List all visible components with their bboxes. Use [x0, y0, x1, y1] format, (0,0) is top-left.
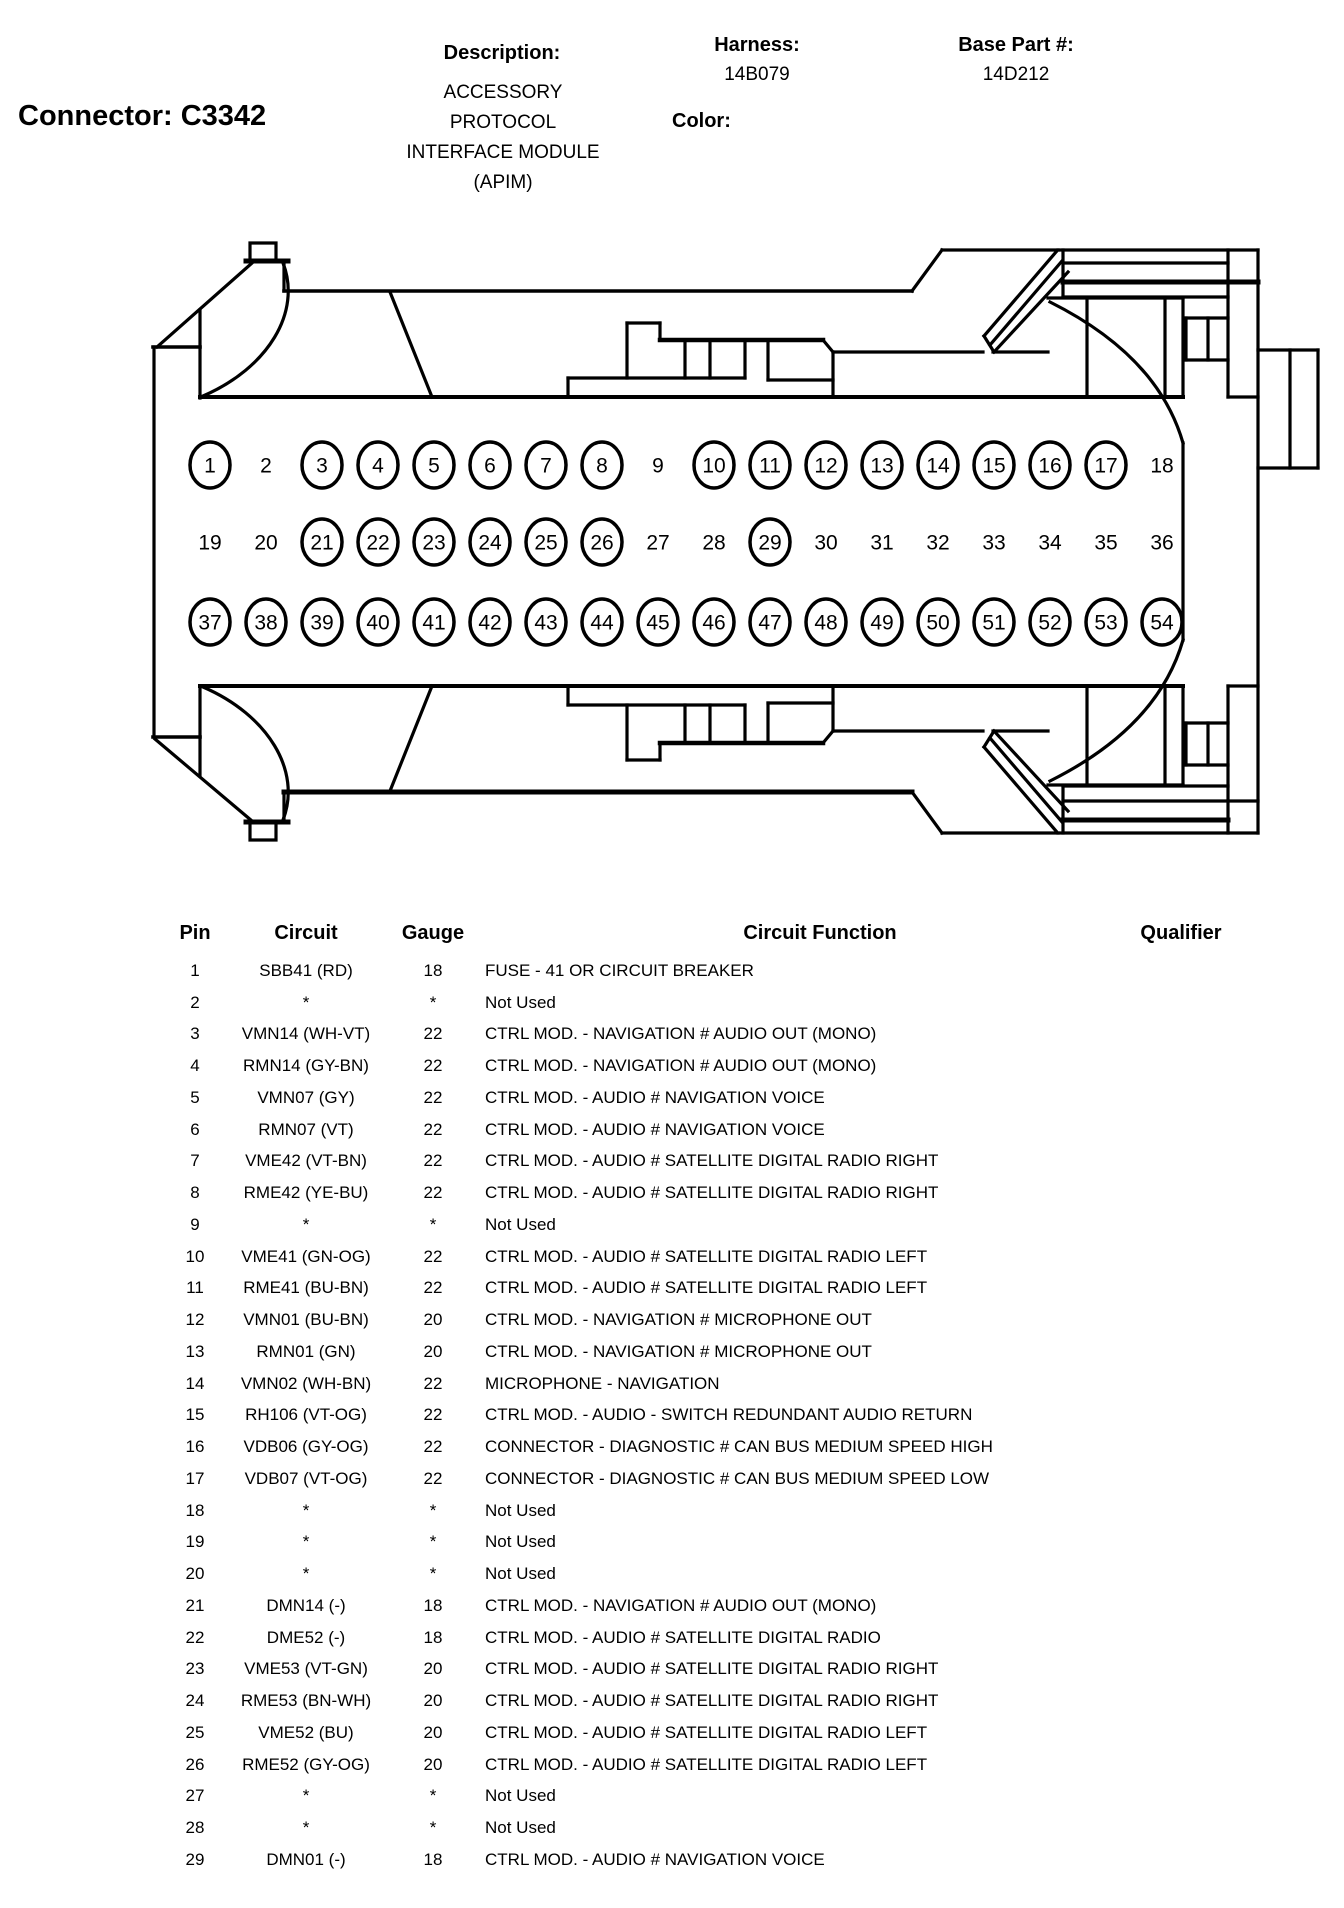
pin-number: 45	[646, 612, 669, 635]
pin-number: 31	[870, 532, 893, 555]
gauge-cell: 22	[393, 1437, 473, 1457]
gauge-cell: *	[393, 1564, 473, 1584]
circuit-cell: VME42 (VT-BN)	[196, 1151, 416, 1171]
pin-number: 8	[596, 455, 608, 478]
gauge-cell: 20	[393, 1659, 473, 1679]
table-row: 7VME42 (VT-BN)22CTRL MOD. - AUDIO # SATE…	[0, 1146, 1344, 1178]
circuit-function-cell: CTRL MOD. - AUDIO # SATELLITE DIGITAL RA…	[485, 1183, 938, 1203]
pin-number: 2	[260, 455, 272, 478]
circuit-function-cell: CTRL MOD. - AUDIO # SATELLITE DIGITAL RA…	[485, 1659, 938, 1679]
gauge-cell: 18	[393, 1628, 473, 1648]
table-row: 29DMN01 (-)18CTRL MOD. - AUDIO # NAVIGAT…	[0, 1844, 1344, 1876]
column-header-circuit: Circuit	[196, 922, 416, 945]
gauge-cell: 22	[393, 1183, 473, 1203]
circuit-function-cell: CTRL MOD. - AUDIO # SATELLITE DIGITAL RA…	[485, 1278, 927, 1298]
gauge-cell: *	[393, 1532, 473, 1552]
table-row: 22DME52 (-)18CTRL MOD. - AUDIO # SATELLI…	[0, 1622, 1344, 1654]
pin-number: 46	[702, 612, 725, 635]
pin-number: 42	[478, 612, 501, 635]
pin-number: 9	[652, 455, 664, 478]
pin-number: 15	[982, 455, 1005, 478]
pin-number: 16	[1038, 455, 1061, 478]
gauge-cell: 20	[393, 1723, 473, 1743]
gauge-cell: 22	[393, 1278, 473, 1298]
circuit-cell: VDB06 (GY-OG)	[196, 1437, 416, 1457]
pin-number: 44	[590, 612, 614, 635]
circuit-cell: VME41 (GN-OG)	[196, 1247, 416, 1267]
circuit-function-cell: CONNECTOR - DIAGNOSTIC # CAN BUS MEDIUM …	[485, 1469, 989, 1489]
gauge-cell: 22	[393, 1247, 473, 1267]
pin-number: 21	[310, 532, 333, 555]
circuit-cell: VMN02 (WH-BN)	[196, 1374, 416, 1394]
pin-number: 37	[198, 612, 221, 635]
circuit-cell: VMN07 (GY)	[196, 1088, 416, 1108]
pin-number: 18	[1150, 455, 1173, 478]
table-row: 5VMN07 (GY)22CTRL MOD. - AUDIO # NAVIGAT…	[0, 1082, 1344, 1114]
circuit-function-cell: Not Used	[485, 1532, 556, 1552]
column-header-gauge: Gauge	[393, 922, 473, 945]
table-row: 16VDB06 (GY-OG)22CONNECTOR - DIAGNOSTIC …	[0, 1431, 1344, 1463]
gauge-cell: 20	[393, 1342, 473, 1362]
table-row: 24RME53 (BN-WH)20CTRL MOD. - AUDIO # SAT…	[0, 1685, 1344, 1717]
pin-number: 7	[540, 455, 552, 478]
pin-number: 22	[366, 532, 389, 555]
connector-pinout-document: { "header": { "connector_label": "Connec…	[0, 0, 1344, 1908]
pin-number: 28	[702, 532, 725, 555]
pin-number: 48	[814, 612, 837, 635]
table-row: 27**Not Used	[0, 1781, 1344, 1813]
pin-number: 51	[982, 612, 1005, 635]
pin-number: 4	[372, 455, 384, 478]
connector-diagram: 1234567891011121314151617181920212223242…	[0, 0, 1344, 900]
gauge-cell: 22	[393, 1088, 473, 1108]
gauge-cell: 22	[393, 1056, 473, 1076]
pin-number: 54	[1150, 612, 1174, 635]
table-row: 9**Not Used	[0, 1209, 1344, 1241]
table-row: 1SBB41 (RD)18FUSE - 41 OR CIRCUIT BREAKE…	[0, 955, 1344, 987]
pin-number: 38	[254, 612, 277, 635]
circuit-function-cell: Not Used	[485, 1215, 556, 1235]
circuit-function-cell: Not Used	[485, 1818, 556, 1838]
gauge-cell: 22	[393, 1024, 473, 1044]
circuit-cell: RMN14 (GY-BN)	[196, 1056, 416, 1076]
pin-number: 30	[814, 532, 837, 555]
pin-number: 26	[590, 532, 613, 555]
circuit-function-cell: CTRL MOD. - AUDIO # SATELLITE DIGITAL RA…	[485, 1151, 938, 1171]
circuit-function-cell: CTRL MOD. - NAVIGATION # AUDIO OUT (MONO…	[485, 1024, 876, 1044]
table-row: 26RME52 (GY-OG)20CTRL MOD. - AUDIO # SAT…	[0, 1749, 1344, 1781]
pin-number: 29	[758, 532, 781, 555]
table-row: 12VMN01 (BU-BN)20CTRL MOD. - NAVIGATION …	[0, 1304, 1344, 1336]
gauge-cell: 20	[393, 1691, 473, 1711]
pin-number: 3	[316, 455, 328, 478]
pin-number: 50	[926, 612, 949, 635]
circuit-function-cell: Not Used	[485, 993, 556, 1013]
pin-number: 12	[814, 455, 837, 478]
table-row: 10VME41 (GN-OG)22CTRL MOD. - AUDIO # SAT…	[0, 1241, 1344, 1273]
gauge-cell: 18	[393, 1596, 473, 1616]
pin-number: 10	[702, 455, 725, 478]
circuit-function-cell: CTRL MOD. - AUDIO # SATELLITE DIGITAL RA…	[485, 1628, 881, 1648]
pin-number: 20	[254, 532, 277, 555]
gauge-cell: *	[393, 1786, 473, 1806]
circuit-function-cell: CTRL MOD. - NAVIGATION # MICROPHONE OUT	[485, 1342, 872, 1362]
table-row: 13RMN01 (GN)20CTRL MOD. - NAVIGATION # M…	[0, 1336, 1344, 1368]
gauge-cell: 18	[393, 1850, 473, 1870]
circuit-cell: *	[196, 1501, 416, 1521]
circuit-cell: *	[196, 1818, 416, 1838]
circuit-function-cell: CTRL MOD. - AUDIO - SWITCH REDUNDANT AUD…	[485, 1405, 972, 1425]
pin-number: 32	[926, 532, 949, 555]
table-row: 20**Not Used	[0, 1558, 1344, 1590]
circuit-function-cell: CTRL MOD. - AUDIO # NAVIGATION VOICE	[485, 1088, 825, 1108]
circuit-cell: *	[196, 993, 416, 1013]
circuit-function-cell: CTRL MOD. - NAVIGATION # MICROPHONE OUT	[485, 1310, 872, 1330]
pin-number: 41	[422, 612, 445, 635]
table-row: 23VME53 (VT-GN)20CTRL MOD. - AUDIO # SAT…	[0, 1654, 1344, 1686]
gauge-cell: *	[393, 993, 473, 1013]
circuit-cell: *	[196, 1786, 416, 1806]
table-row: 11RME41 (BU-BN)22CTRL MOD. - AUDIO # SAT…	[0, 1273, 1344, 1305]
gauge-cell: 22	[393, 1405, 473, 1425]
pin-number: 27	[646, 532, 669, 555]
circuit-cell: RME42 (YE-BU)	[196, 1183, 416, 1203]
pin-number: 33	[982, 532, 1005, 555]
gauge-cell: *	[393, 1215, 473, 1235]
pin-number: 11	[759, 455, 781, 478]
pin-number: 35	[1094, 532, 1117, 555]
circuit-cell: RMN01 (GN)	[196, 1342, 416, 1362]
circuit-function-cell: FUSE - 41 OR CIRCUIT BREAKER	[485, 961, 754, 981]
pinout-table-rows: 1SBB41 (RD)18FUSE - 41 OR CIRCUIT BREAKE…	[0, 955, 1344, 1876]
circuit-function-cell: Not Used	[485, 1501, 556, 1521]
table-row: 19**Not Used	[0, 1527, 1344, 1559]
gauge-cell: 18	[393, 961, 473, 981]
circuit-function-cell: CTRL MOD. - NAVIGATION # AUDIO OUT (MONO…	[485, 1596, 876, 1616]
pin-number: 6	[484, 455, 496, 478]
circuit-cell: DME52 (-)	[196, 1628, 416, 1648]
pin-number: 5	[428, 455, 440, 478]
pin-number: 43	[534, 612, 557, 635]
table-row: 8RME42 (YE-BU)22CTRL MOD. - AUDIO # SATE…	[0, 1177, 1344, 1209]
pin-number: 49	[870, 612, 893, 635]
table-row: 18**Not Used	[0, 1495, 1344, 1527]
gauge-cell: 22	[393, 1120, 473, 1140]
pin-number: 40	[366, 612, 389, 635]
circuit-cell: VME52 (BU)	[196, 1723, 416, 1743]
table-row: 2**Not Used	[0, 987, 1344, 1019]
pin-number: 17	[1094, 455, 1117, 478]
gauge-cell: 22	[393, 1151, 473, 1171]
circuit-function-cell: CONNECTOR - DIAGNOSTIC # CAN BUS MEDIUM …	[485, 1437, 993, 1457]
circuit-cell: RMN07 (VT)	[196, 1120, 416, 1140]
gauge-cell: 20	[393, 1755, 473, 1775]
pin-number: 13	[870, 455, 893, 478]
circuit-cell: *	[196, 1215, 416, 1235]
circuit-cell: VDB07 (VT-OG)	[196, 1469, 416, 1489]
table-row: 25VME52 (BU)20CTRL MOD. - AUDIO # SATELL…	[0, 1717, 1344, 1749]
circuit-cell: DMN01 (-)	[196, 1850, 416, 1870]
gauge-cell: 20	[393, 1310, 473, 1330]
circuit-cell: RME41 (BU-BN)	[196, 1278, 416, 1298]
circuit-function-cell: CTRL MOD. - AUDIO # SATELLITE DIGITAL RA…	[485, 1691, 938, 1711]
pin-number: 23	[422, 532, 445, 555]
pin-number: 53	[1094, 612, 1117, 635]
pin-number: 24	[478, 532, 502, 555]
circuit-function-cell: Not Used	[485, 1564, 556, 1584]
table-row: 28**Not Used	[0, 1812, 1344, 1844]
circuit-cell: RME53 (BN-WH)	[196, 1691, 416, 1711]
table-row: 3VMN14 (WH-VT)22CTRL MOD. - NAVIGATION #…	[0, 1019, 1344, 1051]
circuit-function-cell: CTRL MOD. - AUDIO # SATELLITE DIGITAL RA…	[485, 1247, 927, 1267]
circuit-function-cell: CTRL MOD. - AUDIO # NAVIGATION VOICE	[485, 1850, 825, 1870]
table-row: 6RMN07 (VT)22CTRL MOD. - AUDIO # NAVIGAT…	[0, 1114, 1344, 1146]
pin-number: 52	[1038, 612, 1061, 635]
pin-number: 1	[204, 455, 216, 478]
pin-number: 25	[534, 532, 557, 555]
circuit-function-cell: CTRL MOD. - AUDIO # SATELLITE DIGITAL RA…	[485, 1723, 927, 1743]
circuit-function-cell: CTRL MOD. - AUDIO # NAVIGATION VOICE	[485, 1120, 825, 1140]
circuit-function-cell: Not Used	[485, 1786, 556, 1806]
pin-number: 39	[310, 612, 333, 635]
circuit-cell: RME52 (GY-OG)	[196, 1755, 416, 1775]
column-header-circuit-function: Circuit Function	[640, 922, 1000, 945]
circuit-cell: VMN01 (BU-BN)	[196, 1310, 416, 1330]
circuit-function-cell: CTRL MOD. - NAVIGATION # AUDIO OUT (MONO…	[485, 1056, 876, 1076]
circuit-cell: RH106 (VT-OG)	[196, 1405, 416, 1425]
pin-number: 14	[926, 455, 950, 478]
circuit-cell: VMN14 (WH-VT)	[196, 1024, 416, 1044]
gauge-cell: *	[393, 1818, 473, 1838]
circuit-cell: *	[196, 1532, 416, 1552]
column-header-qualifier: Qualifier	[1100, 922, 1262, 945]
circuit-function-cell: CTRL MOD. - AUDIO # SATELLITE DIGITAL RA…	[485, 1755, 927, 1775]
circuit-cell: DMN14 (-)	[196, 1596, 416, 1616]
table-row: 21DMN14 (-)18CTRL MOD. - NAVIGATION # AU…	[0, 1590, 1344, 1622]
circuit-cell: *	[196, 1564, 416, 1584]
table-row: 14VMN02 (WH-BN)22MICROPHONE - NAVIGATION	[0, 1368, 1344, 1400]
circuit-cell: VME53 (VT-GN)	[196, 1659, 416, 1679]
gauge-cell: *	[393, 1501, 473, 1521]
table-row: 17VDB07 (VT-OG)22CONNECTOR - DIAGNOSTIC …	[0, 1463, 1344, 1495]
table-row: 15RH106 (VT-OG)22CTRL MOD. - AUDIO - SWI…	[0, 1400, 1344, 1432]
gauge-cell: 22	[393, 1469, 473, 1489]
table-row: 4RMN14 (GY-BN)22CTRL MOD. - NAVIGATION #…	[0, 1050, 1344, 1082]
pin-number: 34	[1038, 532, 1062, 555]
pin-number: 19	[198, 532, 221, 555]
circuit-cell: SBB41 (RD)	[196, 961, 416, 981]
gauge-cell: 22	[393, 1374, 473, 1394]
pin-number: 36	[1150, 532, 1173, 555]
pin-field: 1234567891011121314151617181920212223242…	[190, 442, 1182, 645]
circuit-function-cell: MICROPHONE - NAVIGATION	[485, 1374, 720, 1394]
pin-number: 47	[758, 612, 781, 635]
